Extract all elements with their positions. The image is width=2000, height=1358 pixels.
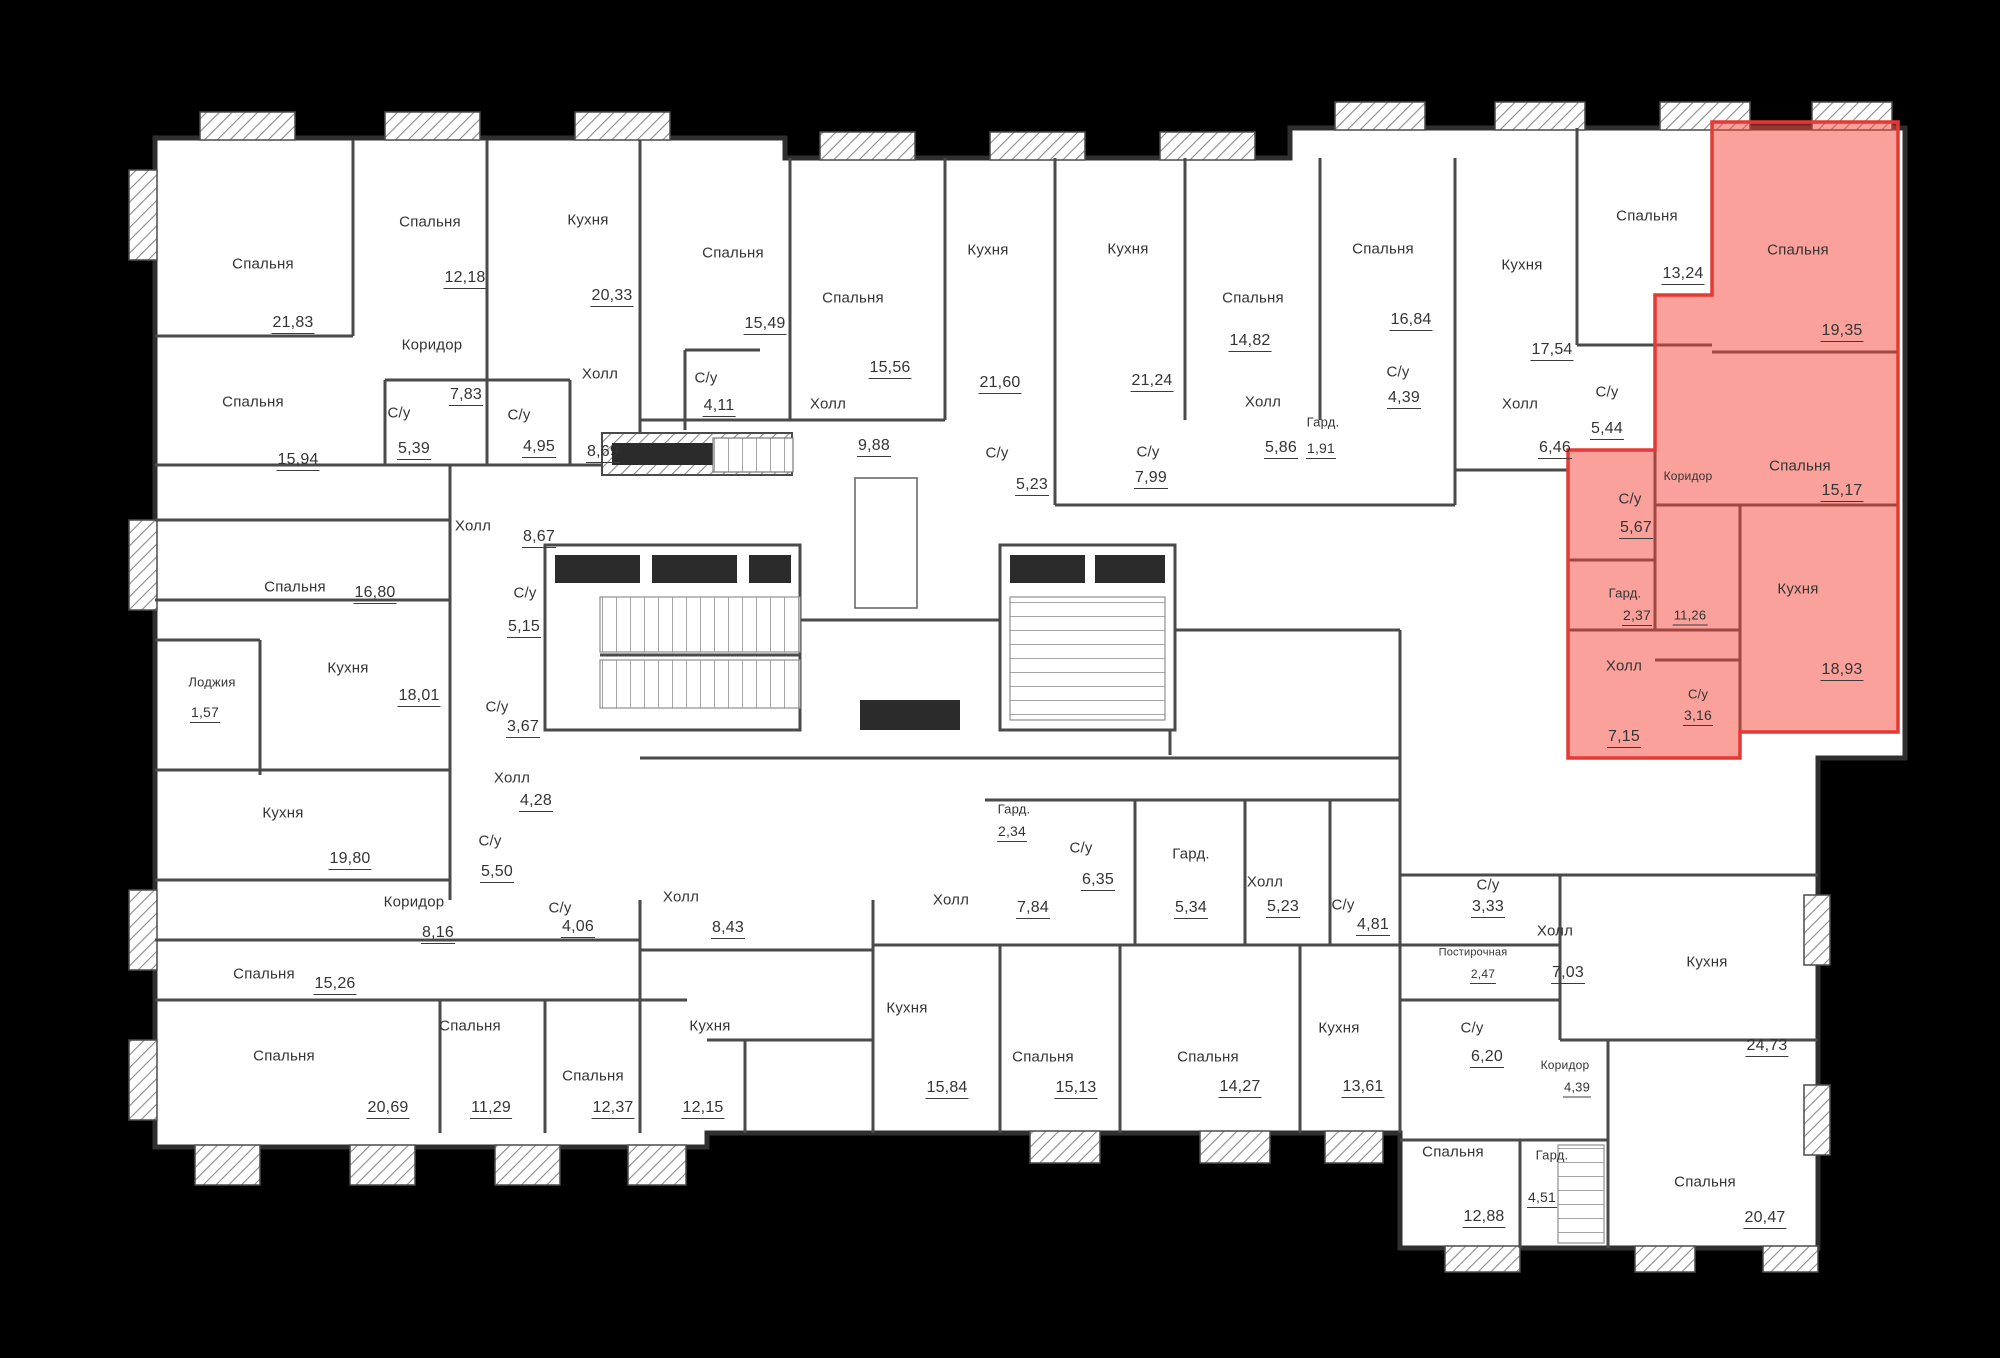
room-area: 19,80: [328, 851, 371, 867]
room-area: 2,47: [1470, 968, 1496, 980]
room-label: Кухня: [886, 1001, 927, 1016]
room-area: 4,11: [703, 398, 736, 414]
room-label: Кухня: [327, 661, 368, 676]
room-area: 13,61: [1341, 1079, 1384, 1095]
room-label: Кухня: [1686, 955, 1727, 970]
room-label: Гард.: [1307, 416, 1340, 429]
room-area: 3,16: [1683, 708, 1713, 722]
room-area: 13,24: [1661, 266, 1704, 282]
room-area: 2,34: [997, 824, 1027, 838]
room-area: 21,60: [978, 375, 1021, 391]
room-area: 1,91: [1306, 441, 1336, 455]
room-label: Спальня: [702, 246, 764, 261]
room-label: С/у: [694, 371, 717, 386]
room-area: 18,01: [397, 688, 440, 704]
room-label: С/у: [1460, 1021, 1483, 1036]
room-label: Холл: [1606, 659, 1642, 674]
room-area: 5,67: [1619, 520, 1653, 536]
room-area: 11,29: [470, 1100, 512, 1116]
room-label: С/у: [548, 901, 571, 916]
room-label: Гард.: [1609, 587, 1642, 600]
room-label: Холл: [933, 893, 969, 908]
room-label: Спальня: [1769, 459, 1831, 474]
room-label: Спальня: [1012, 1050, 1074, 1065]
room-label: Кухня: [567, 213, 608, 228]
room-label: Спальня: [264, 580, 326, 595]
room-label: Холл: [494, 771, 530, 786]
room-area: 21,83: [271, 315, 314, 331]
room-label: С/у: [985, 446, 1008, 461]
room-area: 12,37: [591, 1100, 634, 1116]
room-label: С/у: [1386, 365, 1409, 380]
room-area: 16,80: [353, 585, 396, 601]
room-label: Кухня: [689, 1019, 730, 1034]
room-area: 14,82: [1228, 333, 1271, 349]
room-area: 5,50: [480, 864, 514, 880]
room-label: Кухня: [1777, 582, 1818, 597]
room-area: 16,84: [1389, 312, 1432, 328]
room-label: Спальня: [253, 1049, 315, 1064]
room-area: 12,18: [443, 270, 486, 286]
room-label: С/у: [507, 408, 530, 423]
room-label: Спальня: [1616, 209, 1678, 224]
room-label: Спальня: [1767, 243, 1829, 258]
room-area: 15,26: [313, 976, 356, 992]
room-label: Холл: [455, 519, 491, 534]
room-area: 4,95: [522, 439, 556, 455]
room-area: 3,67: [506, 719, 540, 735]
room-label: Спальня: [1352, 242, 1414, 257]
room-label: Холл: [1502, 397, 1538, 412]
room-labels-layer: Спальня21,83Спальня12,18Кухня20,33Коридо…: [0, 0, 2000, 1358]
room-area: 4,28: [519, 793, 553, 809]
room-label: С/у: [387, 406, 410, 421]
room-label: С/у: [485, 700, 508, 715]
room-label: Спальня: [822, 291, 884, 306]
room-label: Кухня: [1501, 258, 1542, 273]
room-area: 7,03: [1551, 965, 1585, 981]
room-area: 21,24: [1130, 373, 1173, 389]
room-area: 6,46: [1538, 440, 1572, 456]
room-area: 5,86: [1264, 440, 1298, 456]
room-area: 8,69: [586, 444, 620, 460]
room-area: 19,35: [1820, 323, 1863, 339]
room-area: 7,84: [1016, 900, 1050, 916]
room-label: С/у: [478, 834, 501, 849]
room-area: 7,99: [1134, 470, 1168, 486]
floorplan-canvas: Спальня21,83Спальня12,18Кухня20,33Коридо…: [0, 0, 2000, 1358]
room-label: С/у: [1331, 898, 1354, 913]
room-label: Спальня: [1222, 291, 1284, 306]
room-area: 6,35: [1081, 872, 1115, 888]
room-label: С/у: [1069, 841, 1092, 856]
room-label: Гард.: [1172, 847, 1210, 862]
room-label: Спальня: [1422, 1145, 1484, 1160]
room-label: Гард.: [1536, 1149, 1569, 1162]
room-label: С/у: [1688, 688, 1708, 701]
room-area: 7,83: [449, 387, 483, 403]
room-label: Холл: [810, 397, 846, 412]
room-label: Коридор: [1664, 470, 1713, 482]
room-label: С/у: [1618, 492, 1641, 507]
room-label: Коридор: [1541, 1059, 1590, 1071]
room-area: 2,37: [1622, 608, 1652, 622]
room-area: 5,44: [1590, 421, 1624, 437]
room-label: Коридор: [402, 338, 463, 353]
room-area: 5,34: [1174, 900, 1208, 916]
room-area: 4,39: [1387, 390, 1421, 406]
room-area: 9,88: [857, 438, 891, 454]
room-area: 15,84: [925, 1080, 968, 1096]
room-label: Кухня: [1107, 242, 1148, 257]
room-label: Постирочная: [1439, 948, 1508, 959]
room-area: 4,81: [1356, 917, 1390, 933]
room-area: 15,56: [868, 360, 911, 376]
room-label: Спальня: [562, 1069, 624, 1084]
room-label: Холл: [1537, 924, 1573, 939]
room-label: Кухня: [1318, 1021, 1359, 1036]
room-label: Лоджия: [188, 676, 235, 689]
room-label: Кухня: [967, 243, 1008, 258]
room-label: Холл: [582, 367, 618, 382]
room-label: Спальня: [1674, 1175, 1736, 1190]
room-area: 1,57: [190, 705, 220, 719]
room-label: Спальня: [233, 967, 295, 982]
room-area: 7,15: [1607, 729, 1641, 745]
room-area: 4,51: [1527, 1190, 1557, 1204]
room-area: 20,69: [366, 1100, 409, 1116]
room-area: 15,17: [1820, 483, 1863, 499]
room-label: Гард.: [998, 803, 1031, 816]
room-area: 5,15: [507, 619, 541, 635]
room-area: 15,13: [1054, 1080, 1097, 1096]
room-area: 14,27: [1218, 1079, 1261, 1095]
room-area: 6,20: [1470, 1049, 1504, 1065]
room-area: 5,23: [1266, 899, 1300, 915]
room-label: Спальня: [232, 257, 294, 272]
room-area: 12,15: [681, 1100, 724, 1116]
room-label: Кухня: [262, 806, 303, 821]
room-area: 3,33: [1471, 899, 1505, 915]
room-area: 5,39: [397, 441, 431, 457]
room-area: 15,94: [276, 452, 319, 468]
room-label: Спальня: [1177, 1050, 1239, 1065]
room-area: 24,73: [1745, 1038, 1788, 1054]
room-label: С/у: [1136, 445, 1159, 460]
room-label: Спальня: [399, 215, 461, 230]
room-label: Холл: [1245, 395, 1281, 410]
room-label: Спальня: [222, 395, 284, 410]
room-label: Коридор: [384, 895, 445, 910]
room-label: Спальня: [439, 1019, 501, 1034]
room-label: С/у: [513, 586, 536, 601]
room-label: Холл: [1247, 875, 1283, 890]
room-label: С/у: [1476, 878, 1499, 893]
room-area: 20,33: [590, 288, 633, 304]
room-label: Холл: [663, 890, 699, 905]
room-area: 11,26: [1673, 609, 1708, 622]
room-area: 15,49: [743, 316, 786, 332]
room-area: 5,23: [1015, 477, 1049, 493]
room-area: 8,16: [421, 925, 455, 941]
room-area: 4,06: [561, 919, 595, 935]
room-area: 8,67: [522, 529, 556, 545]
room-area: 18,93: [1820, 662, 1863, 678]
room-area: 20,47: [1743, 1210, 1786, 1226]
room-area: 17,54: [1530, 342, 1573, 358]
room-area: 12,88: [1462, 1209, 1505, 1225]
room-area: 4,39: [1563, 1081, 1591, 1094]
room-area: 8,43: [711, 920, 745, 936]
room-label: С/у: [1595, 385, 1618, 400]
